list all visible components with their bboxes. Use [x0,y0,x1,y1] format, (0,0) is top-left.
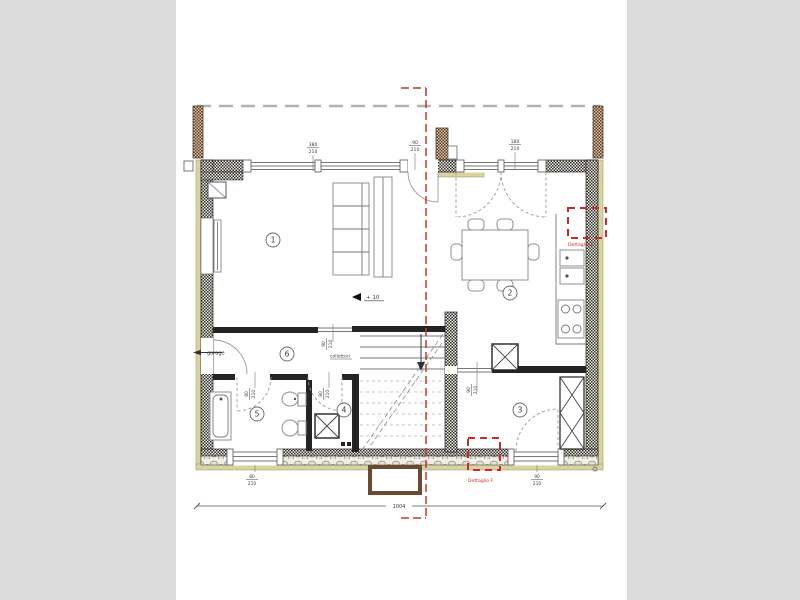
stove [558,300,584,338]
svg-text:80: 80 [244,391,250,397]
svg-text:2: 2 [508,289,513,298]
chair [468,280,484,291]
chair [497,219,513,230]
opening-dims-interior: 90 210 80 210 80 210 90 210 [244,324,479,400]
chimney [436,128,448,160]
manifold-annotation: collettori [330,354,352,360]
svg-text:4: 4 [342,406,347,415]
svg-text:210: 210 [511,146,520,152]
svg-text:6: 6 [285,350,290,359]
svg-text:210: 210 [251,390,257,399]
room-circle-1: 1 [266,233,280,247]
room-circle-2: 2 [503,286,517,300]
top-wall-openings [243,160,546,218]
wardrobe-x-box [560,377,584,449]
svg-text:80: 80 [318,391,324,397]
svg-text:3: 3 [518,406,523,415]
overall-width-label: 1004 [393,504,406,510]
insulation-bands [196,160,603,470]
bathtub [210,392,231,440]
kitchen-sink [560,250,584,284]
svg-text:90: 90 [321,341,327,347]
svg-text:210: 210 [309,149,318,155]
level-marker: + 10 [352,293,384,301]
room-circle-6: 6 [280,347,294,361]
chair [528,244,539,260]
front-door-swing [408,172,438,202]
detail-top-label: Dettaglio E [568,242,594,248]
svg-text:210: 210 [533,481,542,487]
left-pillar [193,106,203,158]
svg-text:90: 90 [534,474,540,480]
gray-canvas: Dettaglio E Dettaglio F 1 2 3 4 [0,0,800,600]
svg-text:80: 80 [249,474,255,480]
bathroom [210,392,339,440]
bath4-door-swing [308,377,342,411]
room-circle-3: 3 [513,403,527,417]
toilet [282,420,306,436]
svg-text:380: 380 [309,142,318,148]
svg-text:5: 5 [255,410,260,419]
bidet [282,392,306,406]
entry-porch [370,467,420,493]
french-door-right-swing [501,172,546,217]
room-circle-4: 4 [337,403,351,417]
svg-text:210: 210 [411,147,420,153]
garage-label: garage [207,351,225,357]
svg-text:210: 210 [325,390,331,399]
shower-x-box [315,414,339,438]
svg-text:90: 90 [412,140,418,146]
right-pillar [593,106,603,158]
french-door-left-swing [456,172,501,217]
floor-plan-drawing: Dettaglio E Dettaglio F 1 2 3 4 [0,0,800,600]
level-label: + 10 [366,295,380,301]
collettori-label: collettori [330,354,350,360]
room-circle-5: 5 [250,407,264,421]
garage-door-swing [213,340,247,374]
svg-text:1: 1 [271,236,276,245]
svg-text:210: 210 [473,386,479,395]
svg-text:90: 90 [466,387,472,393]
svg-text:210: 210 [248,481,257,487]
dining-table [451,219,539,291]
front-door-opening [408,160,438,173]
stairs [360,334,447,452]
sofa [333,177,392,277]
overall-dimension: 1004 [194,501,606,511]
column-x-box [492,344,518,370]
chair [468,219,484,230]
interior-partitions [208,182,586,452]
stair-shaft-wall [445,312,457,452]
detail-bottom-label: Dettaglio F [468,478,494,484]
svg-text:180: 180 [511,139,520,145]
chair [451,244,462,260]
